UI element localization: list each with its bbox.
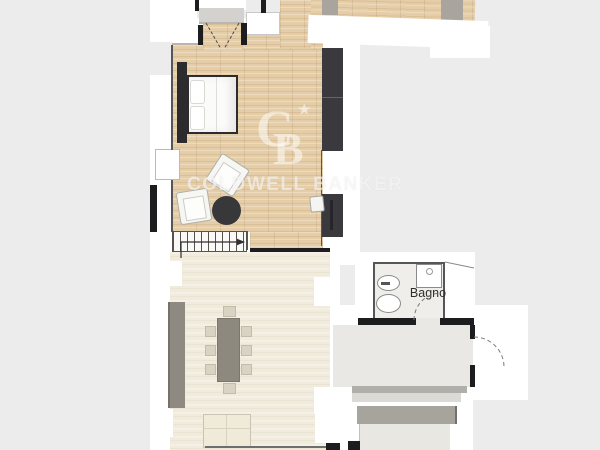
logo-star-icon: ★	[298, 102, 311, 119]
french-door-swing-left	[206, 23, 221, 49]
bathroom-door-swing	[414, 293, 441, 320]
stairs-direction-arrow	[181, 242, 238, 258]
stairs-arrow-head	[237, 239, 245, 245]
plan-symbols	[0, 0, 600, 450]
french-door-swing-right	[224, 23, 239, 49]
logo-letter-b: B	[273, 126, 304, 172]
bathroom-wall-line	[445, 262, 474, 268]
watermark-brand-text: COLDWELL BANKER	[187, 174, 387, 196]
corridor-door-swing	[474, 337, 504, 367]
floor-plan: Bagno C B ★ COLDWELL BANKER	[0, 0, 600, 450]
coldwell-banker-logo: C B ★	[256, 104, 316, 176]
